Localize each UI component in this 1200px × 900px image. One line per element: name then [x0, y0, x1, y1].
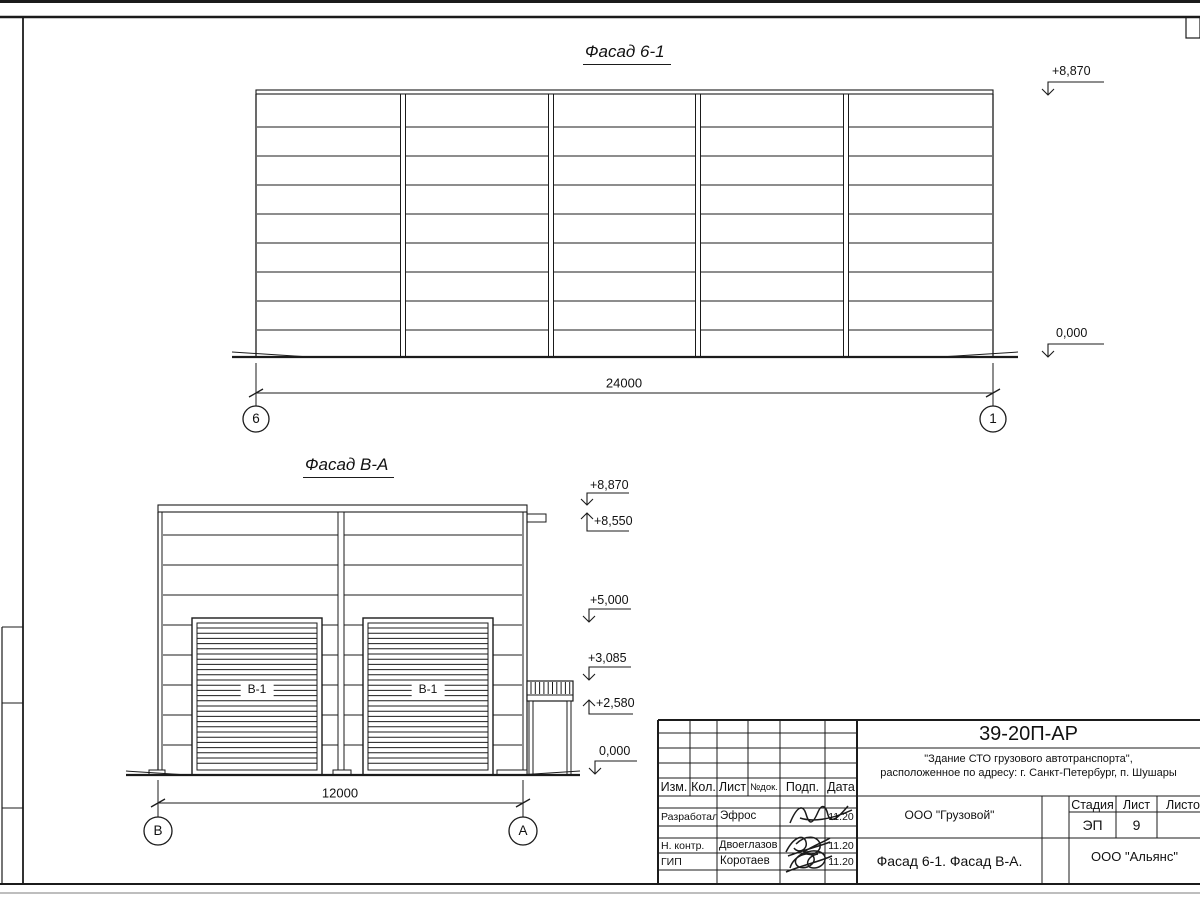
tb-col-ndok: №док. — [748, 783, 780, 794]
facade-b-a-dimension-label: 12000 — [322, 787, 358, 802]
facade-b-a-elev-8550: +8,550 — [594, 514, 633, 528]
tb-name-efros: Эфрос — [720, 810, 756, 823]
facade-b-a-elev-8870: +8,870 — [590, 478, 629, 492]
facade-b-a-elev-2580: +2,580 — [596, 696, 635, 710]
facade-6-1-elevation-marks — [1042, 82, 1104, 357]
facade-b-a-elev-5000: +5,000 — [590, 593, 629, 607]
axis-label-v: В — [153, 823, 162, 839]
facade-b-a-elevation-marks — [581, 493, 637, 774]
tb-name-korotaev: Коротаев — [720, 855, 770, 868]
tb-date-3: 11.20 — [825, 856, 857, 868]
tb-sheet-name: Фасад 6-1. Фасад В-А. — [857, 853, 1042, 869]
tb-col-podp: Подп. — [780, 780, 825, 794]
facade-6-1-dimension — [243, 363, 1006, 432]
facade-6-1-panel-lines — [257, 127, 992, 330]
tb-contractor: ООО "Альянс" — [1069, 850, 1200, 865]
facade-b-a-mullion — [338, 512, 344, 775]
tb-stage-label: Стадия — [1069, 798, 1116, 812]
corner-stamp-box — [1186, 17, 1200, 38]
tb-role-razrabotal: Разработал — [661, 811, 718, 823]
tb-project-line2: расположенное по адресу: г. Санкт-Петерб… — [857, 767, 1200, 780]
tb-list-label: Лист — [1116, 798, 1157, 812]
facade-b-a-elev-3085: +3,085 — [588, 651, 627, 665]
facade-b-a-title: Фасад В-А — [303, 455, 394, 478]
porch — [527, 681, 573, 775]
roof-pipe — [527, 514, 546, 522]
tb-stage-value: ЭП — [1069, 817, 1116, 833]
gate-left-label: В-1 — [241, 682, 274, 698]
facade-6-1-elev-zero: 0,000 — [1056, 326, 1087, 340]
facade-6-1 — [232, 82, 1104, 432]
tb-role-nkontr: Н. контр. — [661, 840, 704, 852]
tb-role-gip: ГИП — [661, 856, 682, 868]
facade-6-1-elev-top: +8,870 — [1052, 64, 1091, 78]
tb-project-line1: "Здание СТО грузового автотранспорта", — [857, 753, 1200, 766]
drawing-sheet: Фасад 6-1 +8,870 0,000 24000 6 1 Фасад В… — [0, 0, 1200, 900]
gate-right-label: В-1 — [412, 682, 445, 698]
tb-name-dvoeglazov: Двоеглазов — [719, 839, 777, 852]
tb-lists-label: Листов — [1166, 798, 1200, 812]
facade-b-a — [126, 493, 637, 845]
tb-doc-number: 39-20П-АР — [857, 723, 1200, 746]
axis-label-1: 1 — [989, 411, 997, 427]
facade-b-a-elev-0000: 0,000 — [599, 744, 630, 758]
tb-date-1: 11.20 — [825, 811, 857, 823]
tb-col-izm: Изм. — [658, 780, 690, 794]
tb-col-data: Дата — [825, 780, 857, 794]
tb-col-kol: Кол. — [690, 780, 717, 794]
tb-list-value: 9 — [1116, 817, 1157, 833]
facade-6-1-mullions — [401, 94, 849, 357]
facade-6-1-title: Фасад 6-1 — [583, 42, 671, 65]
tb-date-2: 11.20 — [825, 840, 857, 852]
axis-label-6: 6 — [252, 411, 260, 427]
tb-organization: ООО "Грузовой" — [857, 809, 1042, 823]
axis-label-a: А — [518, 823, 527, 839]
tb-col-list: Лист — [717, 780, 748, 794]
facade-6-1-dimension-label: 24000 — [606, 377, 642, 392]
facade-6-1-ground — [232, 352, 1018, 357]
left-margin-boxes — [2, 627, 23, 884]
